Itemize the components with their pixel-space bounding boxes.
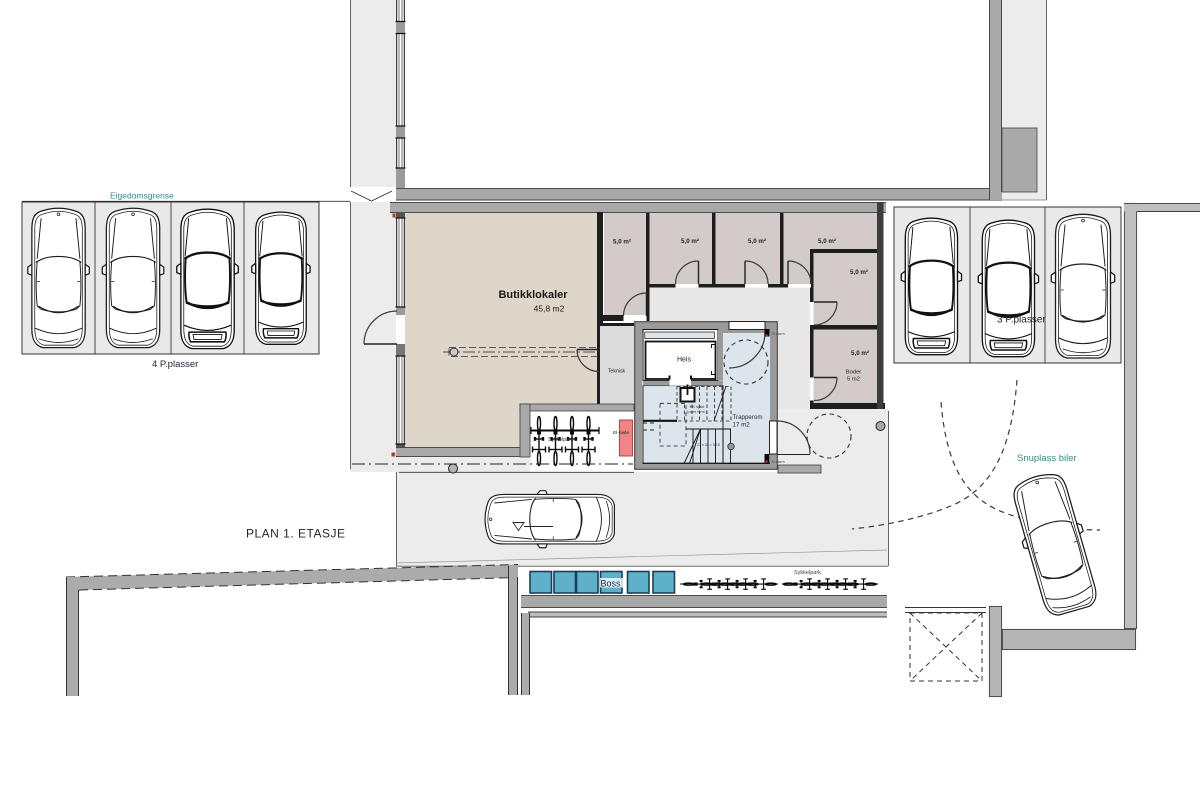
- svg-text:5,0 m²: 5,0 m²: [681, 238, 699, 245]
- svg-text:PLAN 1. ETASJE: PLAN 1. ETASJE: [246, 527, 345, 541]
- svg-text:5 m2: 5 m2: [847, 377, 860, 383]
- svg-text:Boder: Boder: [846, 370, 862, 376]
- svg-text:3 P.plasser: 3 P.plasser: [997, 315, 1046, 326]
- svg-text:Eigedomsgrense: Eigedomsgrense: [110, 191, 174, 201]
- svg-text:5,0 m²: 5,0 m²: [851, 350, 869, 357]
- svg-text:17 m2: 17 m2: [733, 422, 751, 429]
- svg-text:5,0 m²: 5,0 m²: [613, 239, 631, 246]
- svg-text:Snuplass biler: Snuplass biler: [1017, 453, 1077, 464]
- svg-text:Sl.alarm: Sl.alarm: [772, 460, 785, 464]
- svg-text:(over himl.): (over himl.): [687, 409, 708, 414]
- svg-text:Trapperom: Trapperom: [733, 414, 763, 421]
- svg-text:45,8 m2: 45,8 m2: [534, 304, 565, 314]
- svg-text:17 x 32 = 5,10: 17 x 32 = 5,10: [697, 443, 720, 447]
- svg-text:El-tavle: El-tavle: [613, 430, 629, 436]
- svg-text:5,0 m²: 5,0 m²: [850, 269, 868, 276]
- svg-text:Butikklokaler: Butikklokaler: [498, 289, 568, 301]
- svg-text:Heis: Heis: [677, 357, 692, 364]
- svg-text:5,0 m²: 5,0 m²: [818, 238, 836, 245]
- svg-text:Sykkelpark.: Sykkelpark.: [548, 437, 575, 443]
- svg-text:Boss: Boss: [601, 579, 622, 589]
- svg-text:Sl.alarm: Sl.alarm: [772, 332, 785, 336]
- svg-text:4 P.plasser: 4 P.plasser: [152, 359, 198, 370]
- svg-text:Teknisk: Teknisk: [608, 369, 626, 375]
- svg-text:5,0 m²: 5,0 m²: [748, 238, 766, 245]
- svg-text:Sykkelpark.: Sykkelpark.: [794, 570, 823, 576]
